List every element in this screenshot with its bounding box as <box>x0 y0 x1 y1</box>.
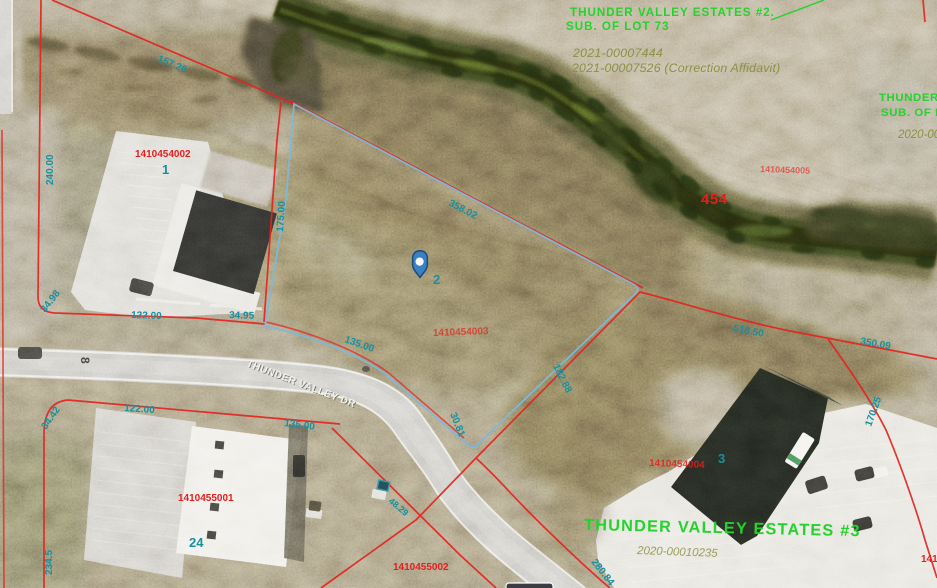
svg-text:1411: 1411 <box>921 554 937 565</box>
svg-text:1410455001: 1410455001 <box>178 493 234 504</box>
svg-text:240.00: 240.00 <box>45 154 56 185</box>
svg-text:3: 3 <box>718 451 725 466</box>
svg-text:1410454003: 1410454003 <box>433 326 489 339</box>
svg-text:1410454002: 1410454002 <box>135 149 191 160</box>
svg-text:1410454005: 1410454005 <box>760 164 810 176</box>
svg-text:THUNDER VALLEY ESTATES #2.: THUNDER VALLEY ESTATES #2. <box>570 6 775 19</box>
svg-text:THUNDER: THUNDER <box>879 92 937 104</box>
svg-text:234.5: 234.5 <box>44 550 55 575</box>
svg-text:24: 24 <box>189 535 204 550</box>
svg-text:122.00: 122.00 <box>131 310 162 322</box>
svg-text:454: 454 <box>701 191 728 208</box>
svg-text:34.95: 34.95 <box>229 310 255 322</box>
svg-text:2: 2 <box>433 272 440 287</box>
svg-text:2020-00: 2020-00 <box>897 129 937 141</box>
svg-text:2021-00007444: 2021-00007444 <box>572 46 663 60</box>
svg-text:SUB. OF LOT 73: SUB. OF LOT 73 <box>566 20 670 33</box>
svg-text:1: 1 <box>162 162 169 177</box>
svg-text:8: 8 <box>78 357 92 364</box>
svg-text:175.00: 175.00 <box>275 200 288 232</box>
svg-text:2021-00007526 (Correction Affi: 2021-00007526 (Correction Affidavit) <box>571 61 780 75</box>
svg-text:122.00: 122.00 <box>124 403 156 416</box>
svg-text:1410455002: 1410455002 <box>393 562 449 573</box>
svg-text:1410454004: 1410454004 <box>649 458 705 471</box>
svg-text:SUB. OF L: SUB. OF L <box>881 107 937 119</box>
